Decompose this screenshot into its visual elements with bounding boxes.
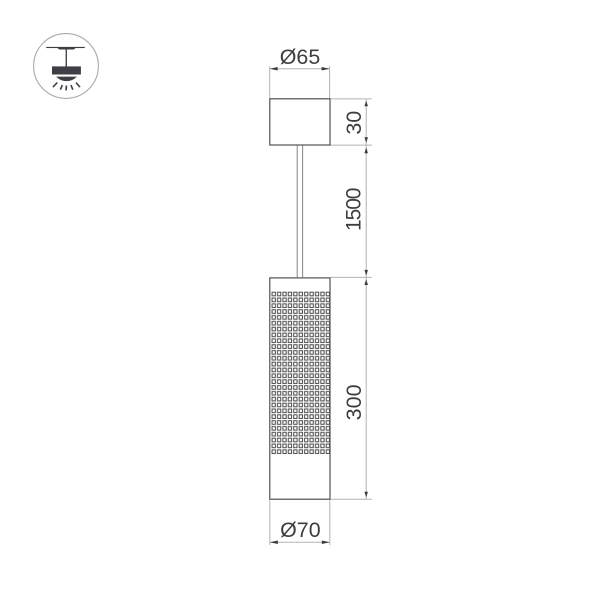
svg-text:Ø65: Ø65 bbox=[280, 45, 320, 69]
svg-text:1500: 1500 bbox=[343, 188, 366, 231]
svg-text:300: 300 bbox=[342, 384, 366, 420]
svg-text:Ø70: Ø70 bbox=[280, 518, 321, 542]
svg-text:30: 30 bbox=[342, 111, 366, 135]
